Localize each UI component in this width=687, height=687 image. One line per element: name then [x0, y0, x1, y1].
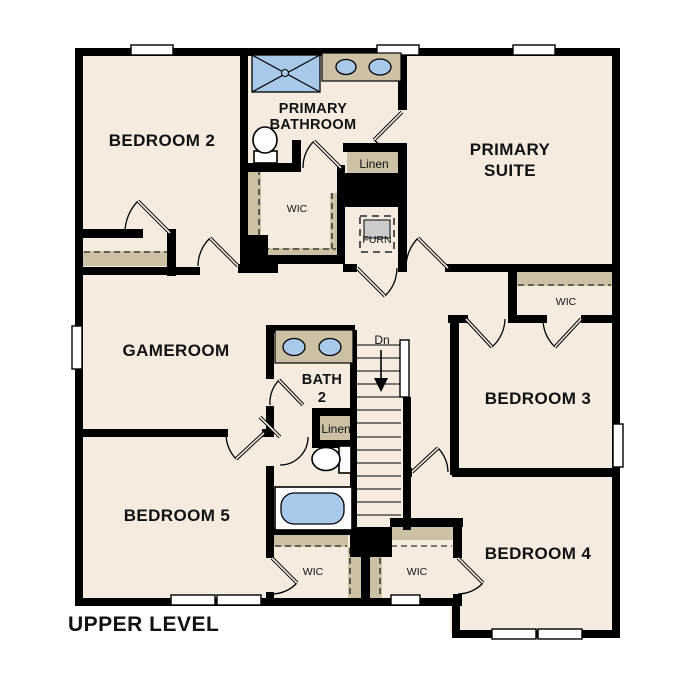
window — [72, 326, 82, 369]
closet-label-wic-bedroom3: WIC — [556, 296, 577, 308]
floor-plan-drawing: BEDROOM 2 PRIMARY BATHROOM PRIMARY SUITE… — [0, 0, 687, 687]
bathtub-icon — [275, 487, 352, 530]
closet-label-linen-lower: Linen — [321, 422, 350, 436]
chase — [350, 527, 392, 557]
shower-icon — [252, 55, 320, 92]
window — [217, 595, 261, 605]
room-label-primary-bathroom: PRIMARY — [279, 101, 347, 117]
room-label-primary-suite: PRIMARY — [470, 140, 551, 159]
stair-railing — [400, 340, 409, 397]
closet-label-linen-upper: Linen — [359, 157, 388, 171]
room-label-primary-suite: SUITE — [484, 161, 536, 180]
window — [513, 45, 555, 55]
chase — [343, 173, 407, 207]
floor-plan: BEDROOM 2 PRIMARY BATHROOM PRIMARY SUITE… — [0, 0, 687, 687]
wall-post — [240, 235, 268, 265]
room-label-bath2: 2 — [318, 390, 326, 406]
room-label-bedroom2: BEDROOM 2 — [109, 131, 216, 150]
window — [613, 424, 623, 467]
utility-label-furnace: FURN — [362, 234, 391, 246]
plan-title: UPPER LEVEL — [68, 613, 219, 636]
window — [171, 595, 215, 605]
window — [538, 629, 582, 639]
room-label-bedroom3: BEDROOM 3 — [485, 389, 592, 408]
room-label-bedroom4: BEDROOM 4 — [485, 544, 592, 563]
double-vanity-icon — [275, 330, 353, 363]
stairs-direction-label: Dn — [374, 333, 389, 347]
double-vanity-icon — [322, 53, 401, 81]
closet-label-wic-bottom-left: WIC — [303, 566, 324, 578]
toilet-icon — [312, 446, 351, 473]
window — [492, 629, 536, 639]
room-label-gameroom: GAMEROOM — [122, 341, 229, 360]
room-label-bath2: BATH — [302, 372, 342, 388]
room-label-bedroom5: BEDROOM 5 — [124, 506, 231, 525]
room-label-primary-bathroom: BATHROOM — [270, 117, 357, 133]
closet-label-wic-bottom-right: WIC — [407, 566, 428, 578]
window — [391, 595, 420, 605]
closet-label-wic-primary: WIC — [287, 203, 308, 215]
window — [131, 45, 173, 55]
